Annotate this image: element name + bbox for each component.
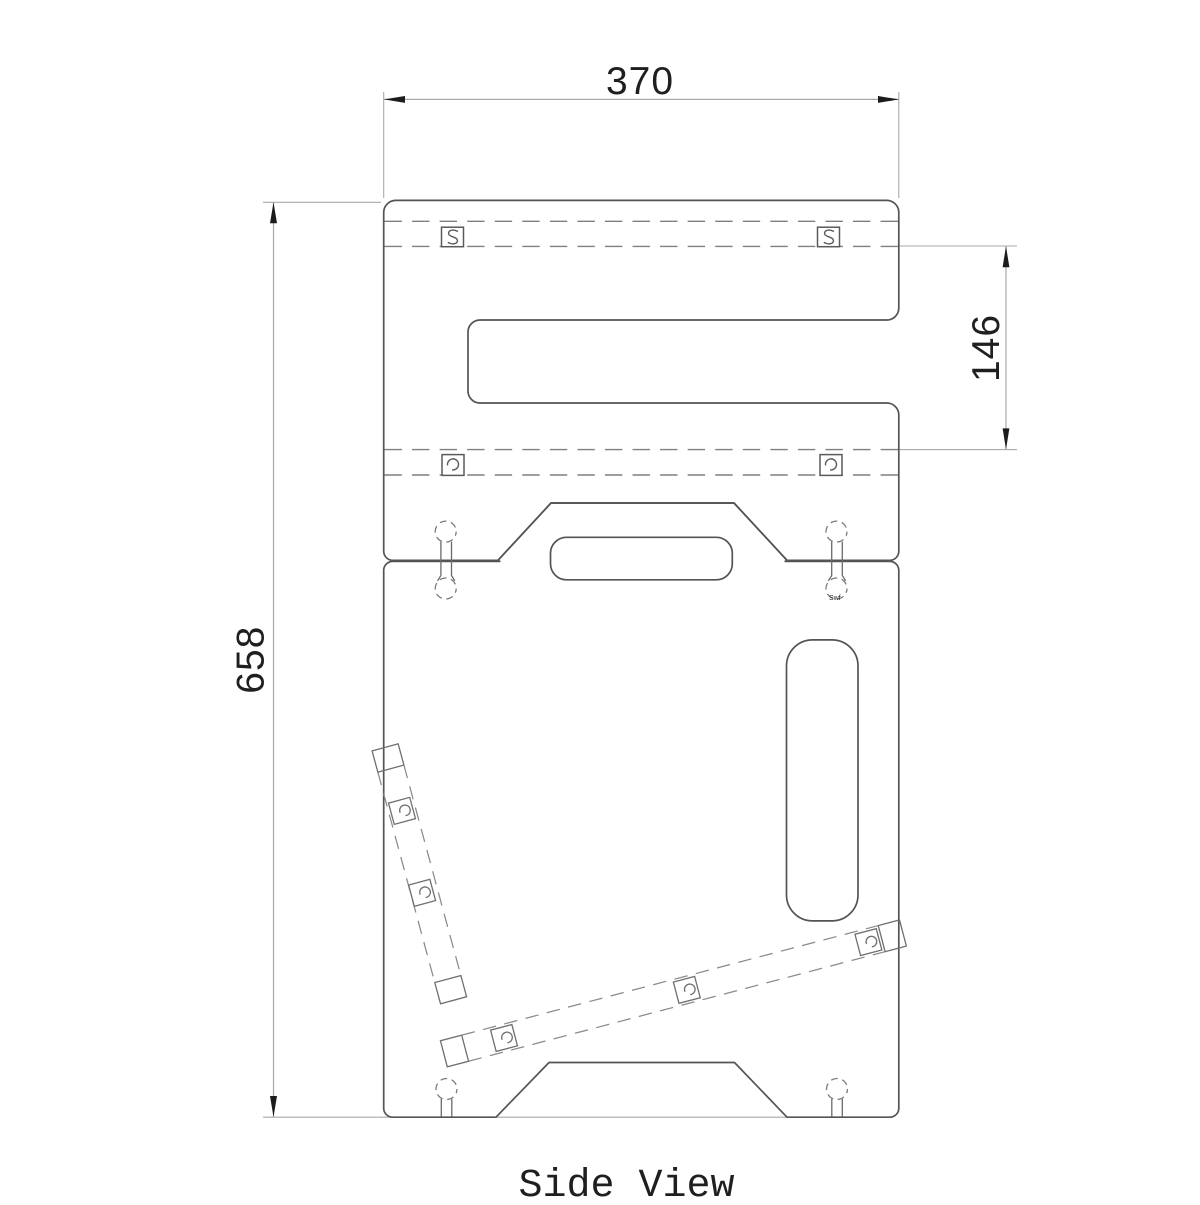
svg-text:370: 370 <box>606 60 674 103</box>
svg-text:146: 146 <box>965 314 1008 382</box>
svg-text:Side View: Side View <box>518 1164 734 1200</box>
svg-text:Swf: Swf <box>829 595 841 602</box>
svg-text:658: 658 <box>230 626 273 694</box>
